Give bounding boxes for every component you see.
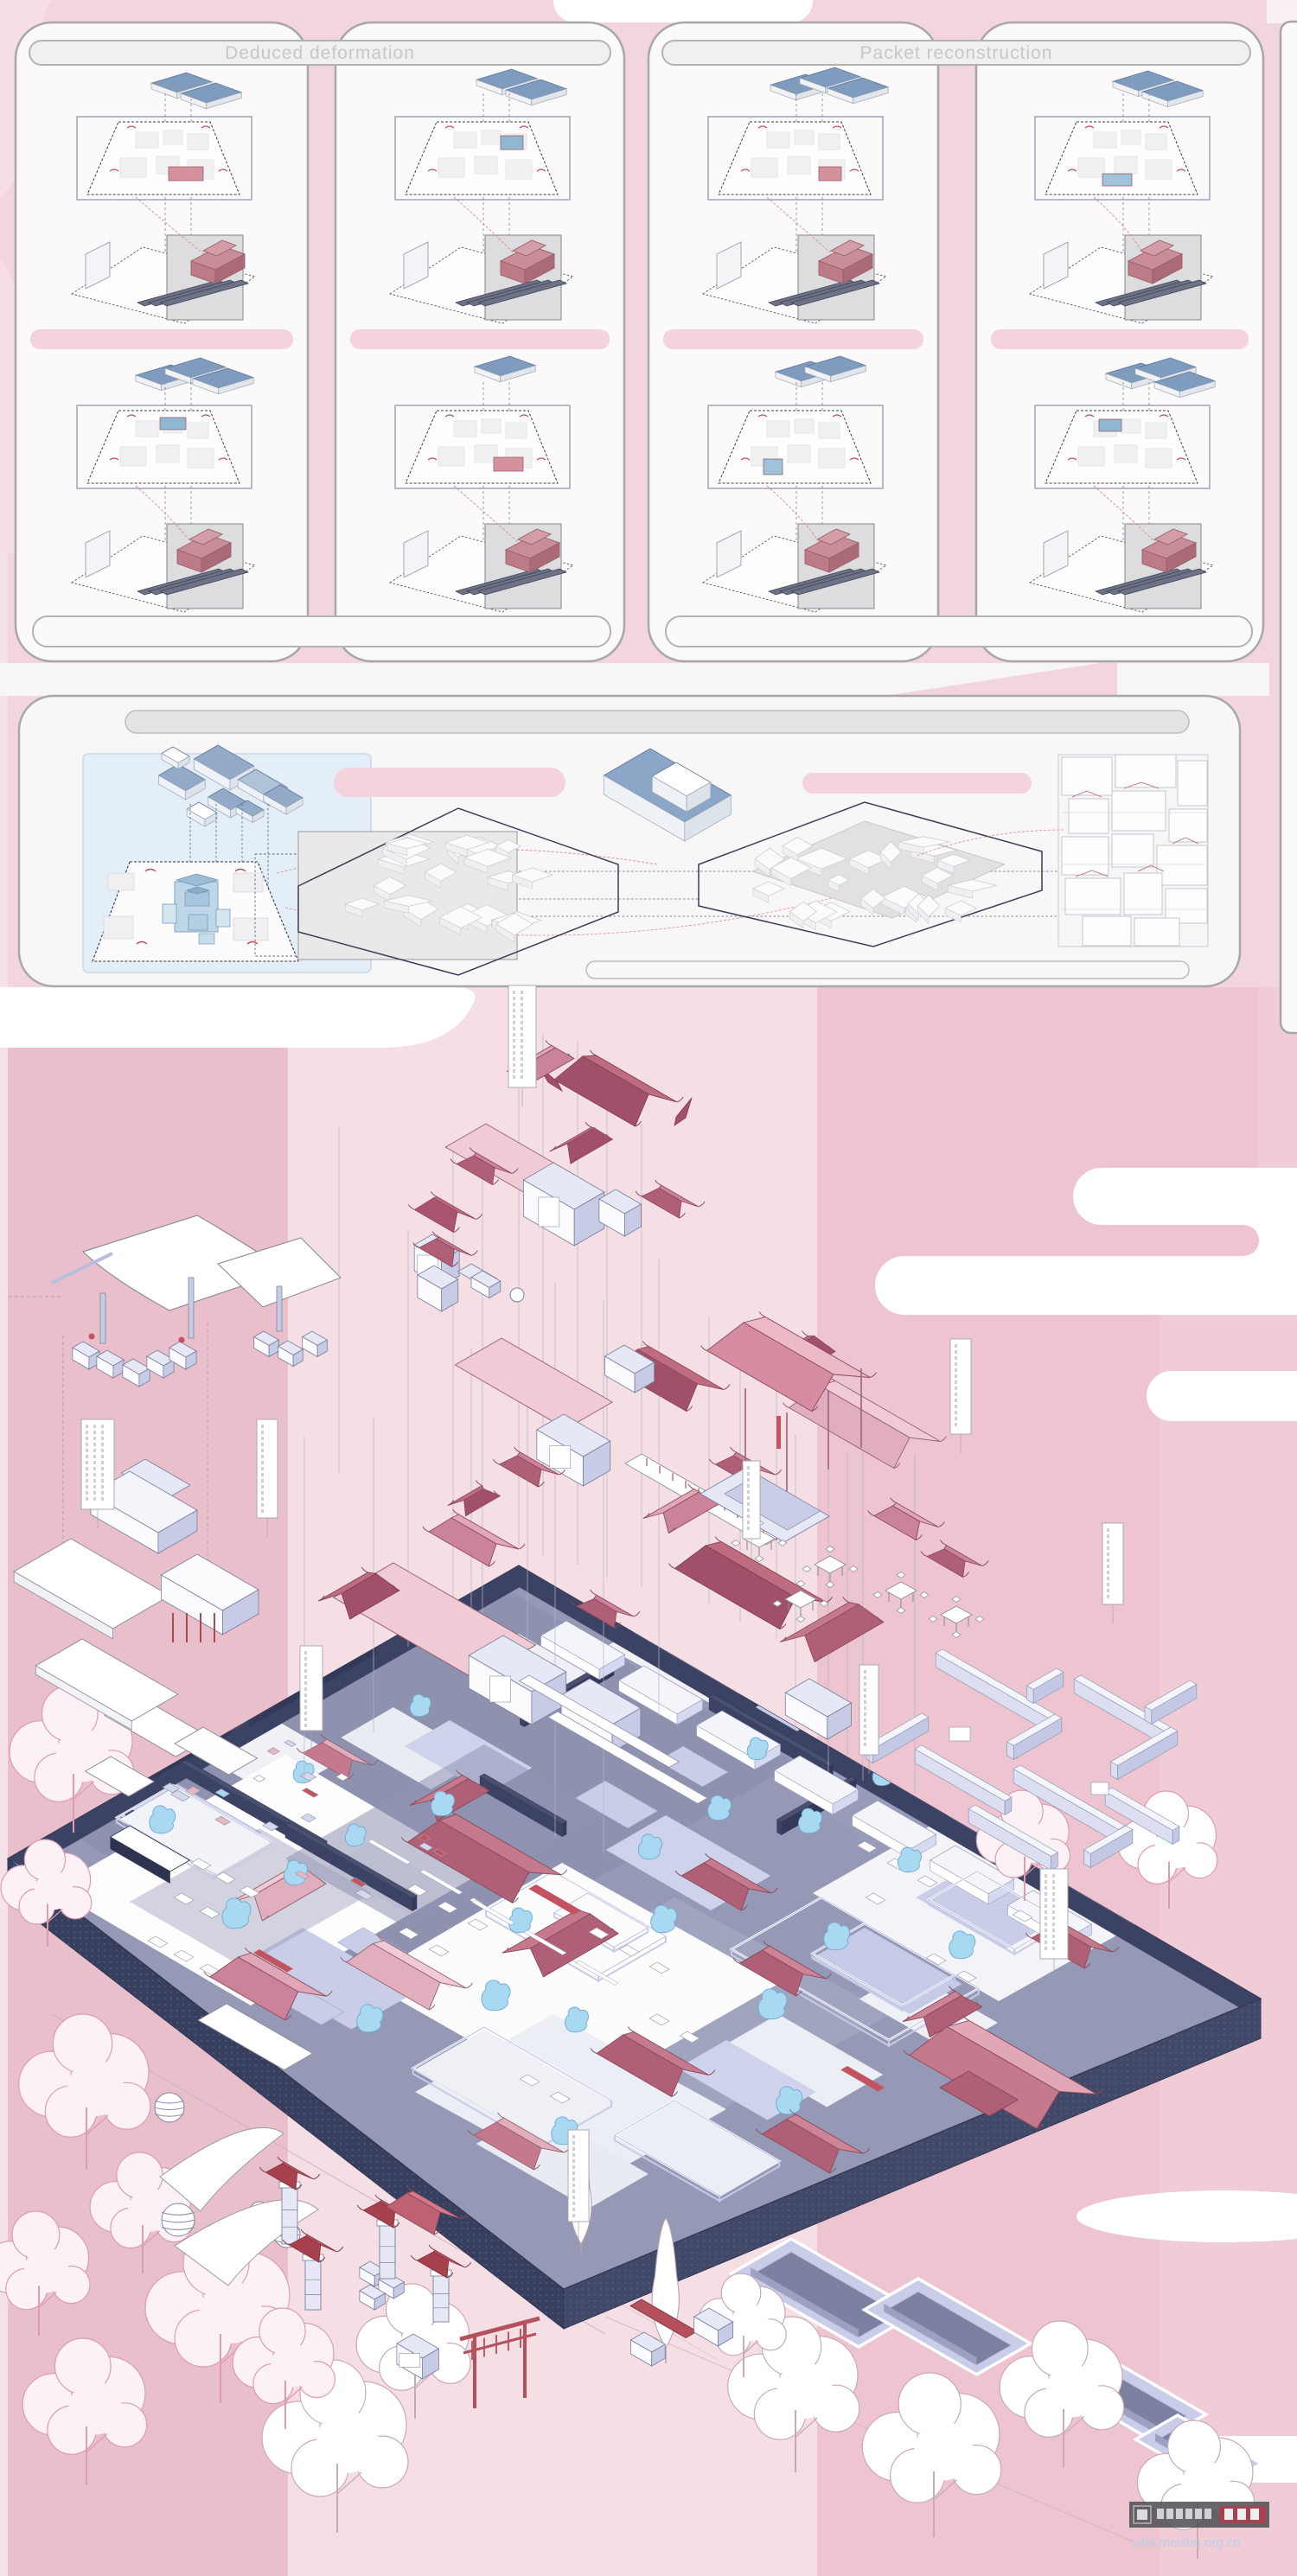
svg-text:Packet reconstruction: Packet reconstruction (860, 43, 1053, 63)
svg-text:Deduced deformation: Deduced deformation (225, 43, 415, 63)
svg-text:xafa.meishu.org.cn: xafa.meishu.org.cn (1131, 2535, 1241, 2550)
